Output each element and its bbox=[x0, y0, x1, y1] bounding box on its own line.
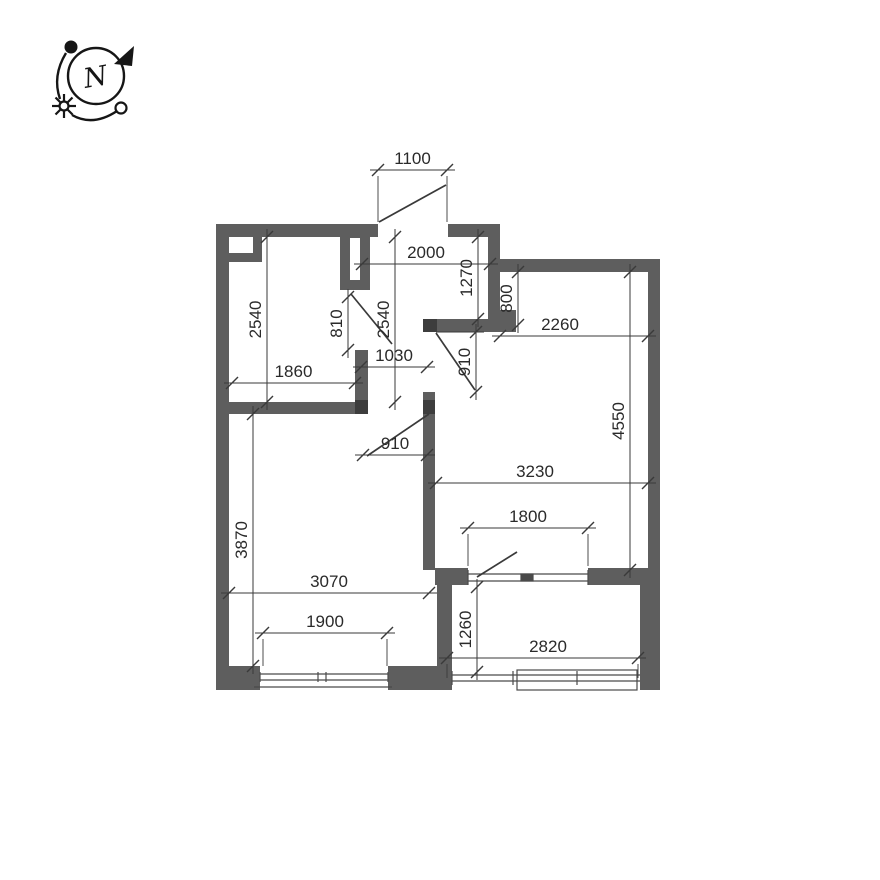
wall bbox=[216, 402, 368, 414]
balcony-door-leaf bbox=[477, 552, 517, 577]
wall bbox=[437, 585, 452, 678]
balcony-door-unit-mullion bbox=[521, 574, 533, 581]
dimension-label: 3230 bbox=[516, 462, 554, 481]
floor-plan-canvas: N 1100200025401860810254010301 bbox=[0, 0, 880, 880]
wall bbox=[435, 568, 468, 585]
dimension-910: 910 bbox=[436, 324, 484, 400]
wall bbox=[588, 568, 660, 585]
wall bbox=[216, 224, 229, 690]
dimension-3870: 3870 bbox=[232, 406, 259, 674]
dimension-1100: 1100 bbox=[370, 149, 455, 222]
compass-left-arc bbox=[57, 53, 66, 99]
compass-bottom-arc bbox=[72, 111, 117, 120]
dimension-1800: 1800 bbox=[460, 507, 596, 566]
dimension-label: 800 bbox=[497, 284, 516, 312]
compass-north-label: N bbox=[80, 60, 111, 95]
wall bbox=[500, 259, 660, 272]
dimension-label: 1860 bbox=[275, 362, 313, 381]
dimension-3230: 3230 bbox=[428, 462, 656, 489]
dimension-1860: 1860 bbox=[224, 362, 363, 389]
dimension-label: 1100 bbox=[394, 149, 431, 168]
dimension-label: 4550 bbox=[609, 402, 628, 440]
dimension-label: 2540 bbox=[246, 301, 265, 339]
door-jamb bbox=[423, 319, 437, 332]
dimension-label: 910 bbox=[381, 434, 409, 453]
dimension-label: 2820 bbox=[529, 637, 567, 656]
dimension-1900: 1900 bbox=[255, 612, 395, 666]
entry-door-leaf bbox=[379, 185, 446, 222]
dimension-label: 910 bbox=[455, 348, 474, 376]
door-jamb bbox=[355, 400, 368, 414]
dimension-label: 810 bbox=[327, 309, 346, 337]
wall-opening bbox=[229, 237, 253, 253]
dimension-1260: 1260 bbox=[456, 579, 483, 680]
dimension-label: 2000 bbox=[407, 243, 445, 262]
door-jamb bbox=[423, 400, 435, 414]
dimension-label: 1270 bbox=[457, 259, 476, 297]
dimension-1270: 1270 bbox=[457, 229, 484, 327]
compass-open-circle-icon bbox=[116, 103, 127, 114]
walls bbox=[216, 224, 660, 690]
dimension-2540: 2540 bbox=[374, 229, 401, 410]
wall bbox=[216, 224, 378, 237]
wall-opening bbox=[350, 238, 360, 280]
compass-sun-icon bbox=[52, 94, 76, 118]
dimension-label: 1900 bbox=[306, 612, 344, 631]
dimension-4550: 4550 bbox=[609, 264, 636, 578]
compass: N bbox=[52, 41, 134, 121]
dimension-label: 3870 bbox=[232, 521, 251, 559]
wall bbox=[423, 392, 435, 570]
dimension-label: 1030 bbox=[375, 346, 413, 365]
floor-plan-drawing: N 1100200025401860810254010301 bbox=[0, 0, 880, 880]
dimension-2000: 2000 bbox=[354, 243, 498, 270]
wall bbox=[448, 224, 500, 237]
wall bbox=[640, 585, 660, 690]
dimension-label: 2260 bbox=[541, 315, 579, 334]
compass-dot-icon bbox=[65, 41, 78, 54]
dimension-2260: 2260 bbox=[492, 315, 656, 342]
dimension-label: 3070 bbox=[310, 572, 348, 591]
dimension-label: 1800 bbox=[509, 507, 547, 526]
dimension-810: 810 bbox=[327, 289, 354, 358]
dimension-label: 2540 bbox=[374, 301, 393, 339]
dimension-label: 1260 bbox=[456, 611, 475, 649]
